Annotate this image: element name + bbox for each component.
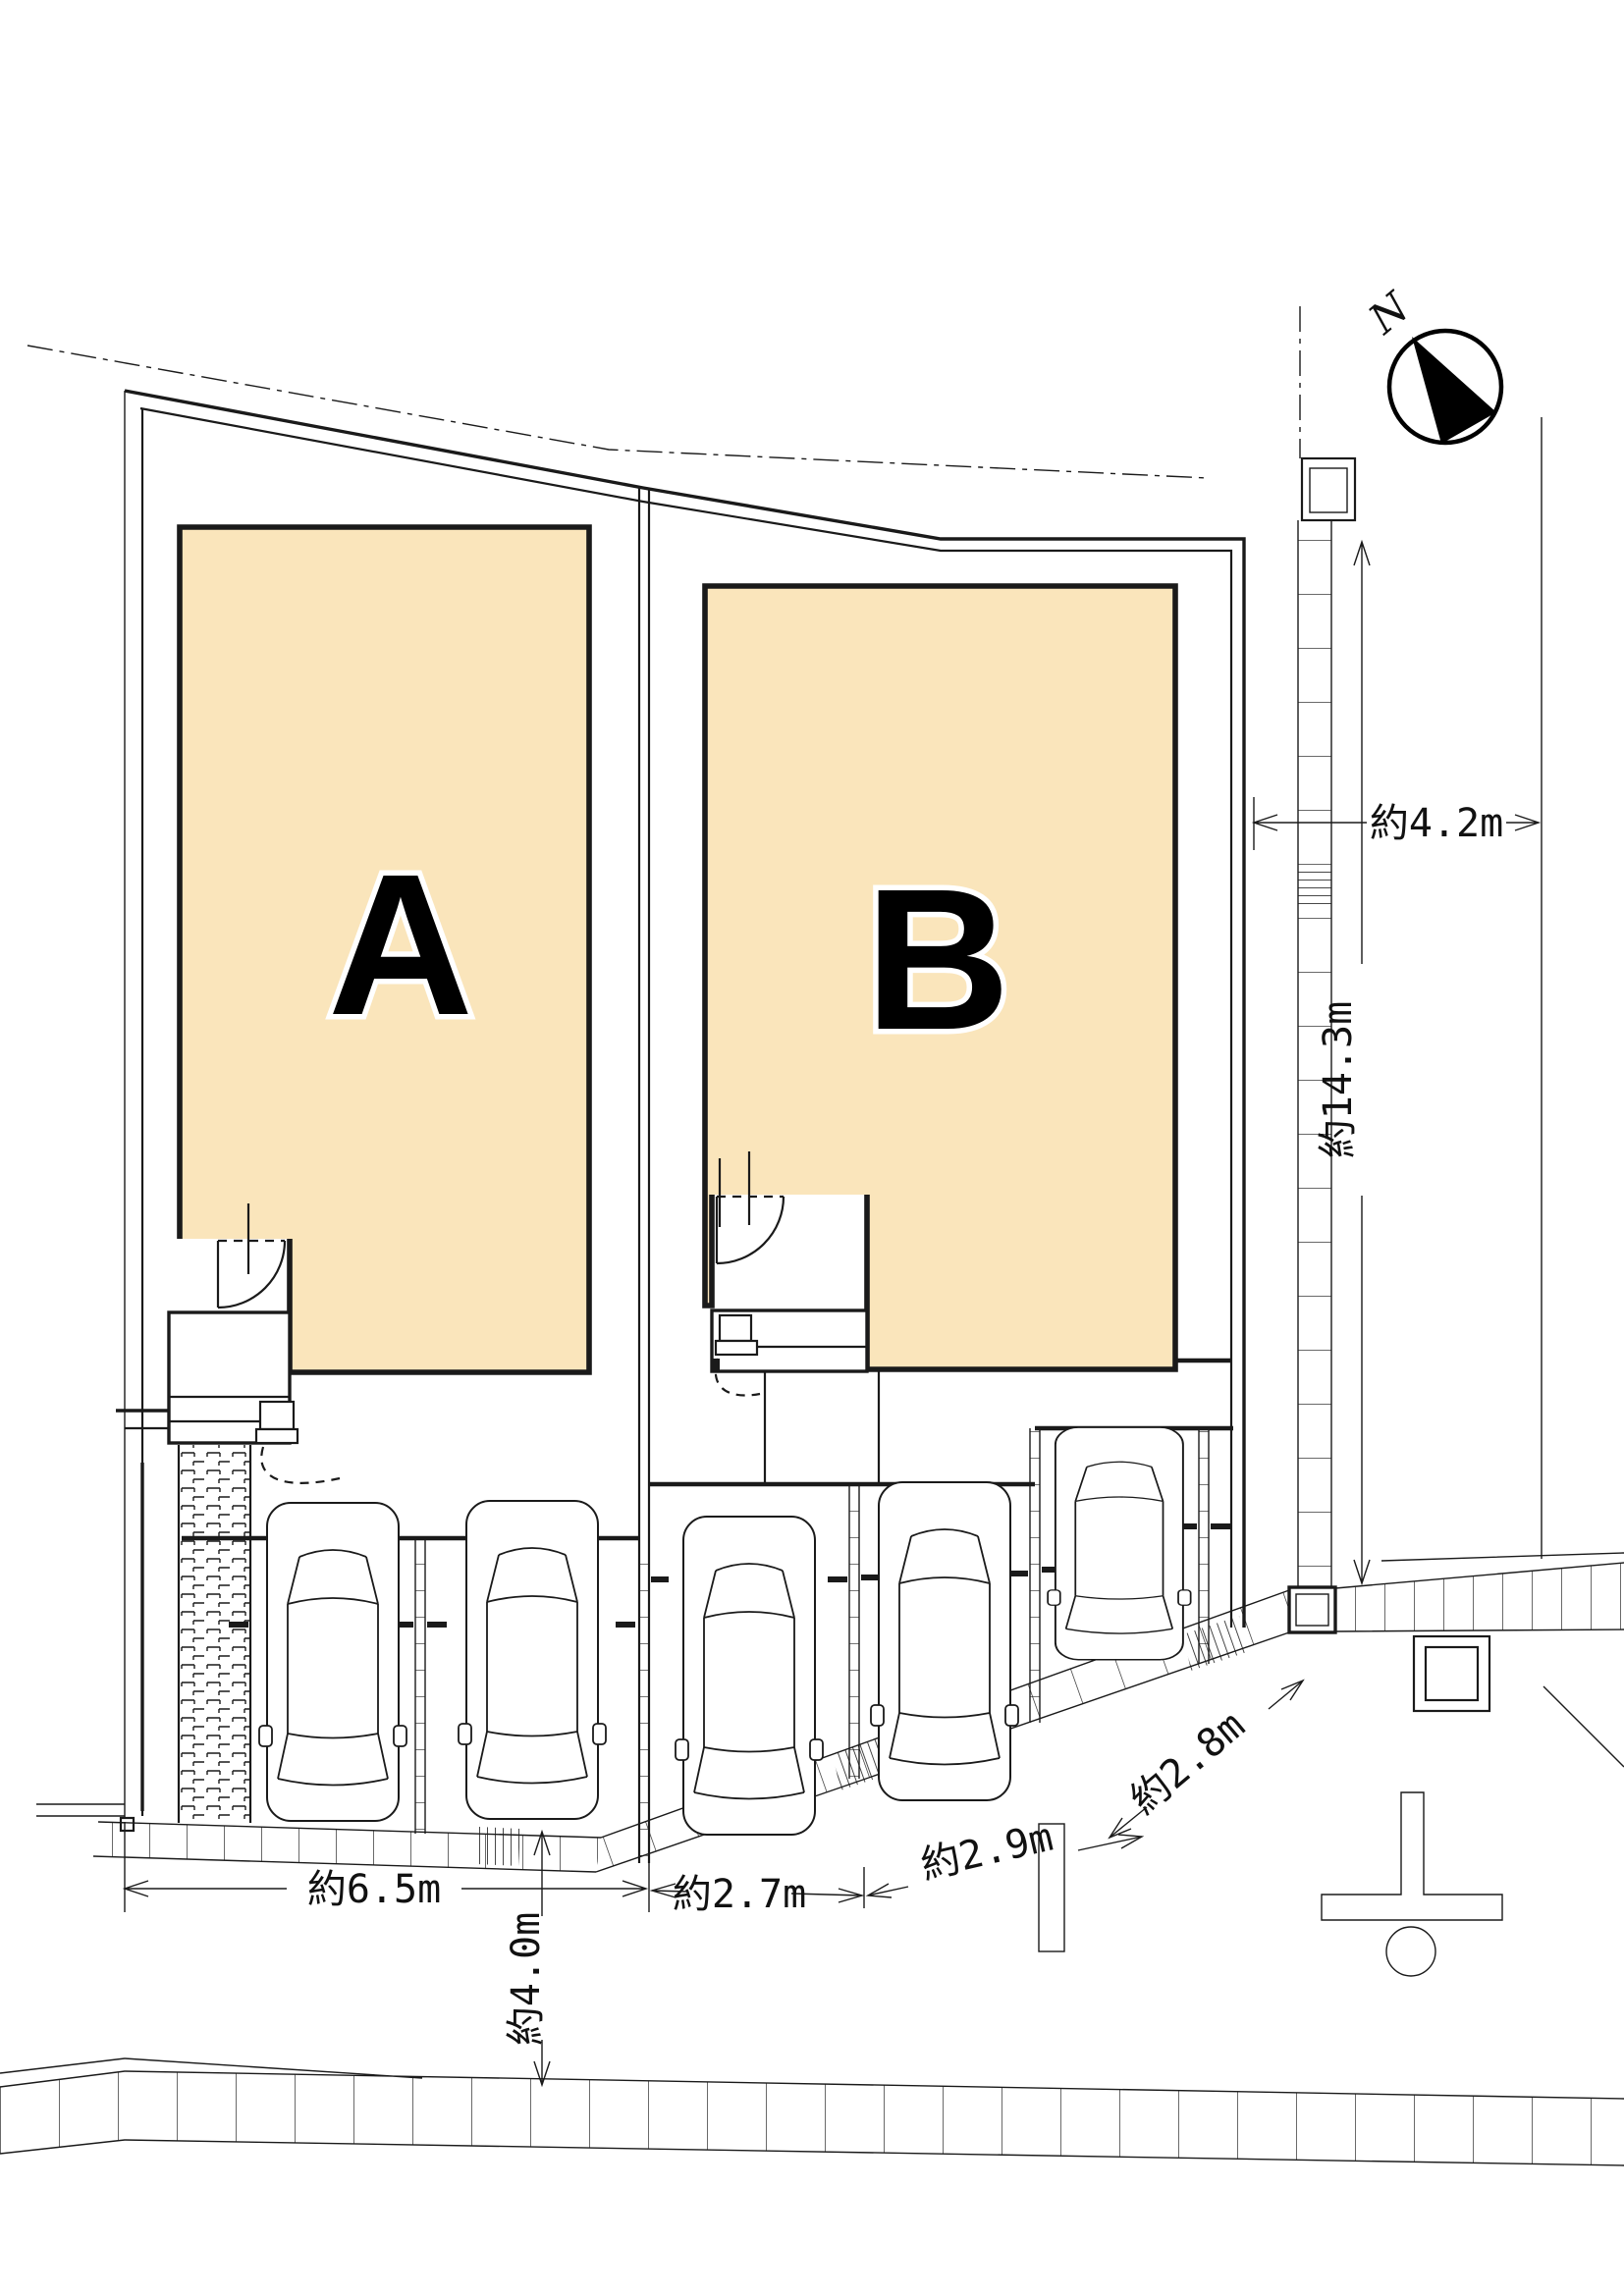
- stall-divider-1: [415, 1538, 425, 1834]
- building-a-meter-base: [256, 1429, 298, 1443]
- site-plan-drawing: A B: [0, 0, 1624, 2296]
- dim-road-east-width: 約4.2m: [1370, 801, 1503, 846]
- catch-basin-east: [1414, 1636, 1489, 1711]
- dim-road-south-width: 約4.0m: [504, 1912, 549, 2046]
- stall-divider-2: [849, 1484, 859, 1779]
- catch-basin-north: [1302, 458, 1355, 520]
- dim-east-side-length: 約14.3m: [1316, 1001, 1361, 1158]
- walkway-brick-strip: [179, 1445, 250, 1823]
- building-a-door-swing-arc: [218, 1241, 285, 1308]
- building-a-gate-swing: [261, 1447, 340, 1483]
- building-b-approach-edges: [765, 1369, 879, 1484]
- site-plan-canvas: A B: [0, 0, 1624, 2296]
- north-compass-icon: N: [1359, 283, 1501, 444]
- diagonal-ramp-2: [1183, 1616, 1247, 1671]
- catch-basin-corner: [1289, 1587, 1335, 1632]
- car-1: [259, 1503, 406, 1821]
- lot-divider-hatch: [639, 1541, 649, 1860]
- car-5: [1048, 1427, 1191, 1660]
- south-sidewalk-ramp: [477, 1827, 520, 1866]
- corner-sidewalk-hatch: [1335, 1563, 1624, 1631]
- dim-road-diag: 約2.8m: [1122, 1703, 1254, 1824]
- dim-road-mid: 約2.7m: [673, 1872, 806, 1917]
- west-tie-lines: [36, 1804, 125, 1816]
- road-centerline-top: [27, 346, 1208, 478]
- building-b-meter-box: [720, 1315, 751, 1341]
- car-3: [676, 1517, 823, 1835]
- lot-a-label: A: [328, 832, 473, 1057]
- east-sidewalk-ramp: [1298, 870, 1331, 907]
- north-label: N: [1359, 283, 1419, 345]
- parking-area: [179, 1427, 1233, 1835]
- stall-divider-3: [1030, 1428, 1040, 1723]
- lot-b-label: B: [865, 847, 1010, 1072]
- building-b-gate-post: [711, 1359, 720, 1370]
- building-b-meter-base: [716, 1341, 757, 1355]
- dim-road-west: 約6.5m: [307, 1867, 441, 1912]
- car-2: [459, 1501, 606, 1819]
- car-4: [871, 1482, 1018, 1800]
- power-pole-with-stay: [1322, 1792, 1502, 1976]
- dim-road-slant: 約2.9m: [916, 1815, 1056, 1889]
- east-road-edge-diagonal: [1543, 1686, 1624, 1767]
- stall-divider-4: [1199, 1428, 1209, 1664]
- building-a-meter-box: [260, 1402, 294, 1429]
